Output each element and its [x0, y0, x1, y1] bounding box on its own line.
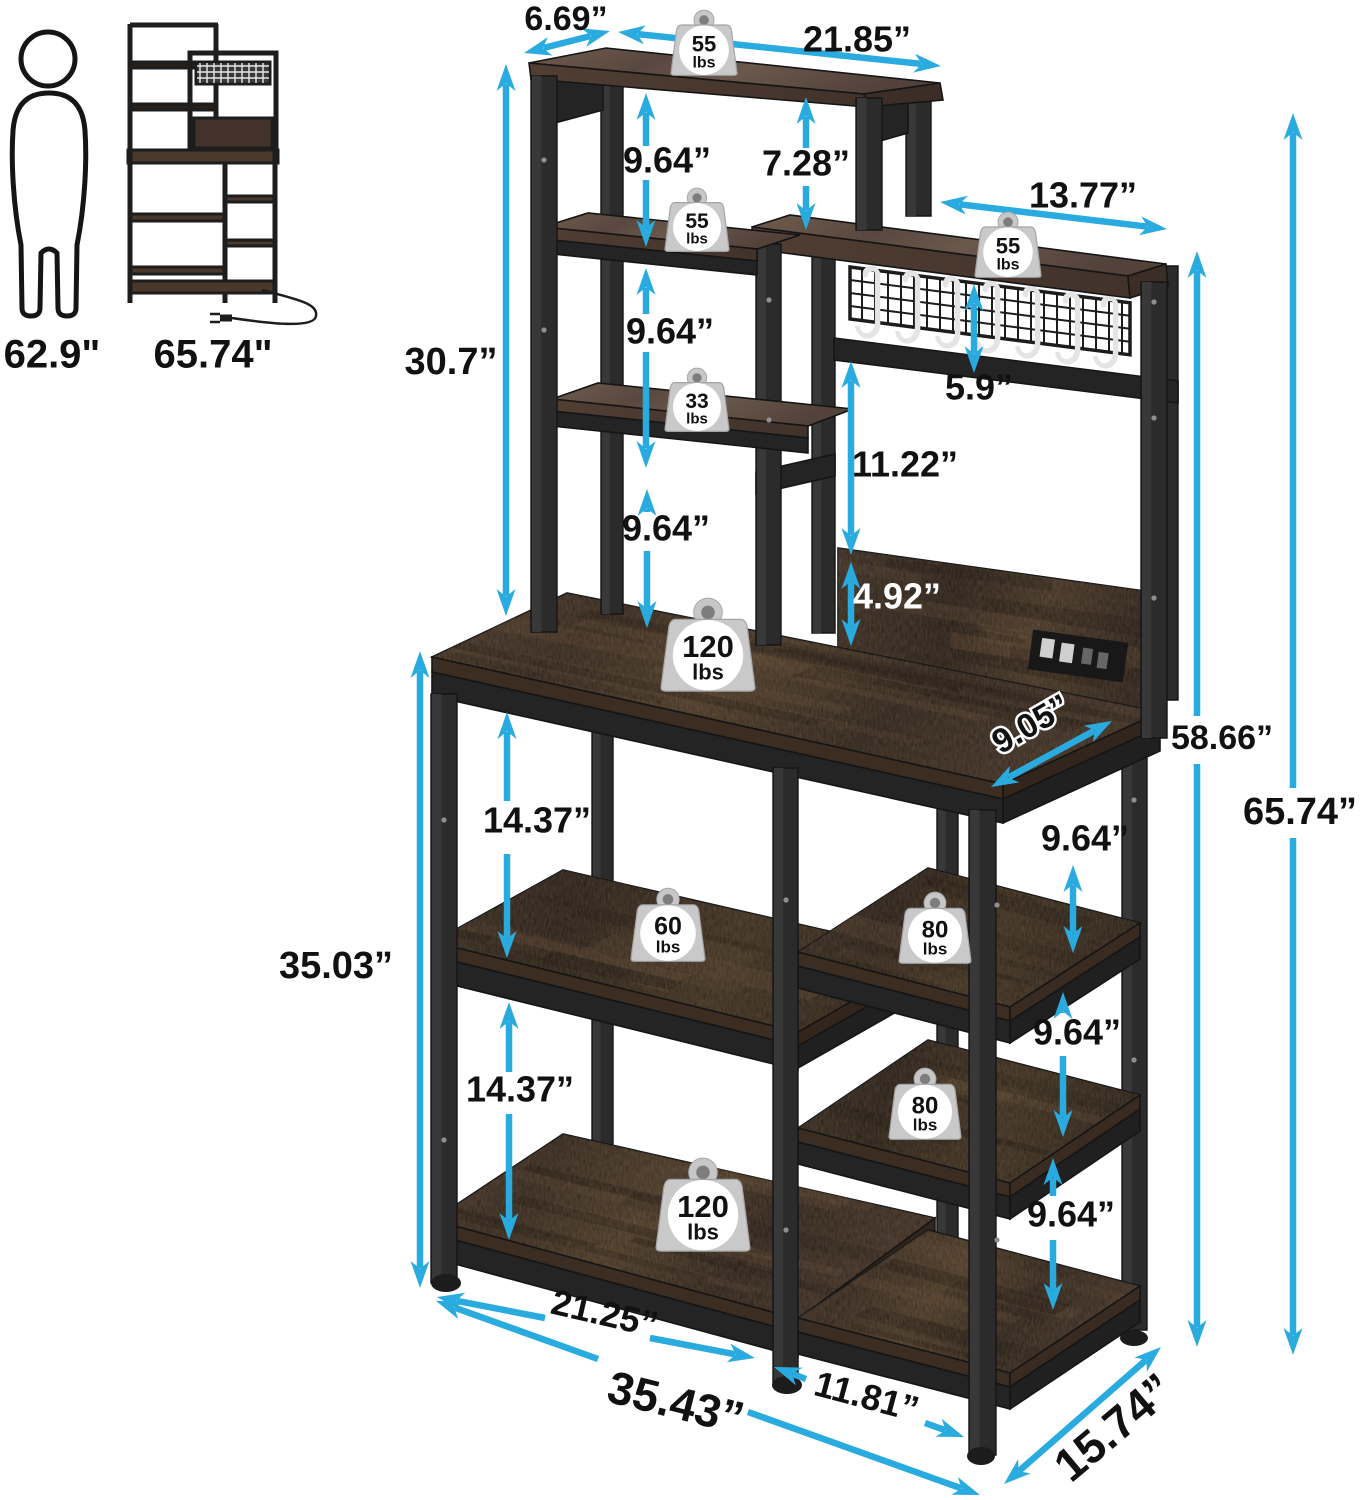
svg-text:11.22”: 11.22”: [852, 444, 958, 485]
svg-text:lbs: lbs: [686, 411, 708, 428]
svg-text:lbs: lbs: [686, 231, 708, 248]
svg-text:4.92”: 4.92”: [853, 576, 941, 617]
svg-text:65.74": 65.74": [153, 333, 272, 377]
svg-text:7.28”: 7.28”: [762, 143, 850, 184]
svg-text:5.9”: 5.9”: [945, 367, 1013, 408]
svg-text:lbs: lbs: [913, 1116, 938, 1135]
svg-text:9.64”: 9.64”: [622, 508, 710, 549]
svg-text:55: 55: [996, 234, 1020, 259]
svg-text:lbs: lbs: [687, 1220, 719, 1245]
svg-text:9.64”: 9.64”: [1033, 1012, 1121, 1053]
svg-text:lbs: lbs: [692, 660, 724, 685]
svg-text:9.64”: 9.64”: [623, 140, 711, 181]
svg-text:14.37”: 14.37”: [466, 1069, 574, 1110]
svg-text:lbs: lbs: [923, 940, 948, 959]
svg-text:14.37”: 14.37”: [483, 800, 591, 841]
svg-text:55: 55: [692, 32, 716, 57]
svg-text:65.74”: 65.74”: [1243, 791, 1357, 833]
svg-text:6.69”: 6.69”: [524, 0, 607, 38]
svg-text:21.85”: 21.85”: [803, 19, 911, 60]
svg-text:9.64”: 9.64”: [1041, 818, 1129, 859]
svg-text:9.64”: 9.64”: [1027, 1194, 1115, 1235]
svg-text:lbs: lbs: [656, 937, 681, 956]
svg-text:35.43”: 35.43”: [603, 1360, 750, 1444]
svg-text:35.03”: 35.03”: [279, 945, 393, 987]
svg-text:30.7”: 30.7”: [405, 341, 498, 383]
svg-text:60: 60: [654, 913, 682, 941]
svg-text:lbs: lbs: [996, 256, 1019, 273]
svg-text:9.64”: 9.64”: [626, 311, 714, 352]
svg-text:62.9": 62.9": [4, 333, 101, 377]
svg-text:lbs: lbs: [692, 54, 715, 71]
svg-text:58.66”: 58.66”: [1171, 719, 1273, 757]
svg-text:13.77”: 13.77”: [1029, 175, 1137, 216]
